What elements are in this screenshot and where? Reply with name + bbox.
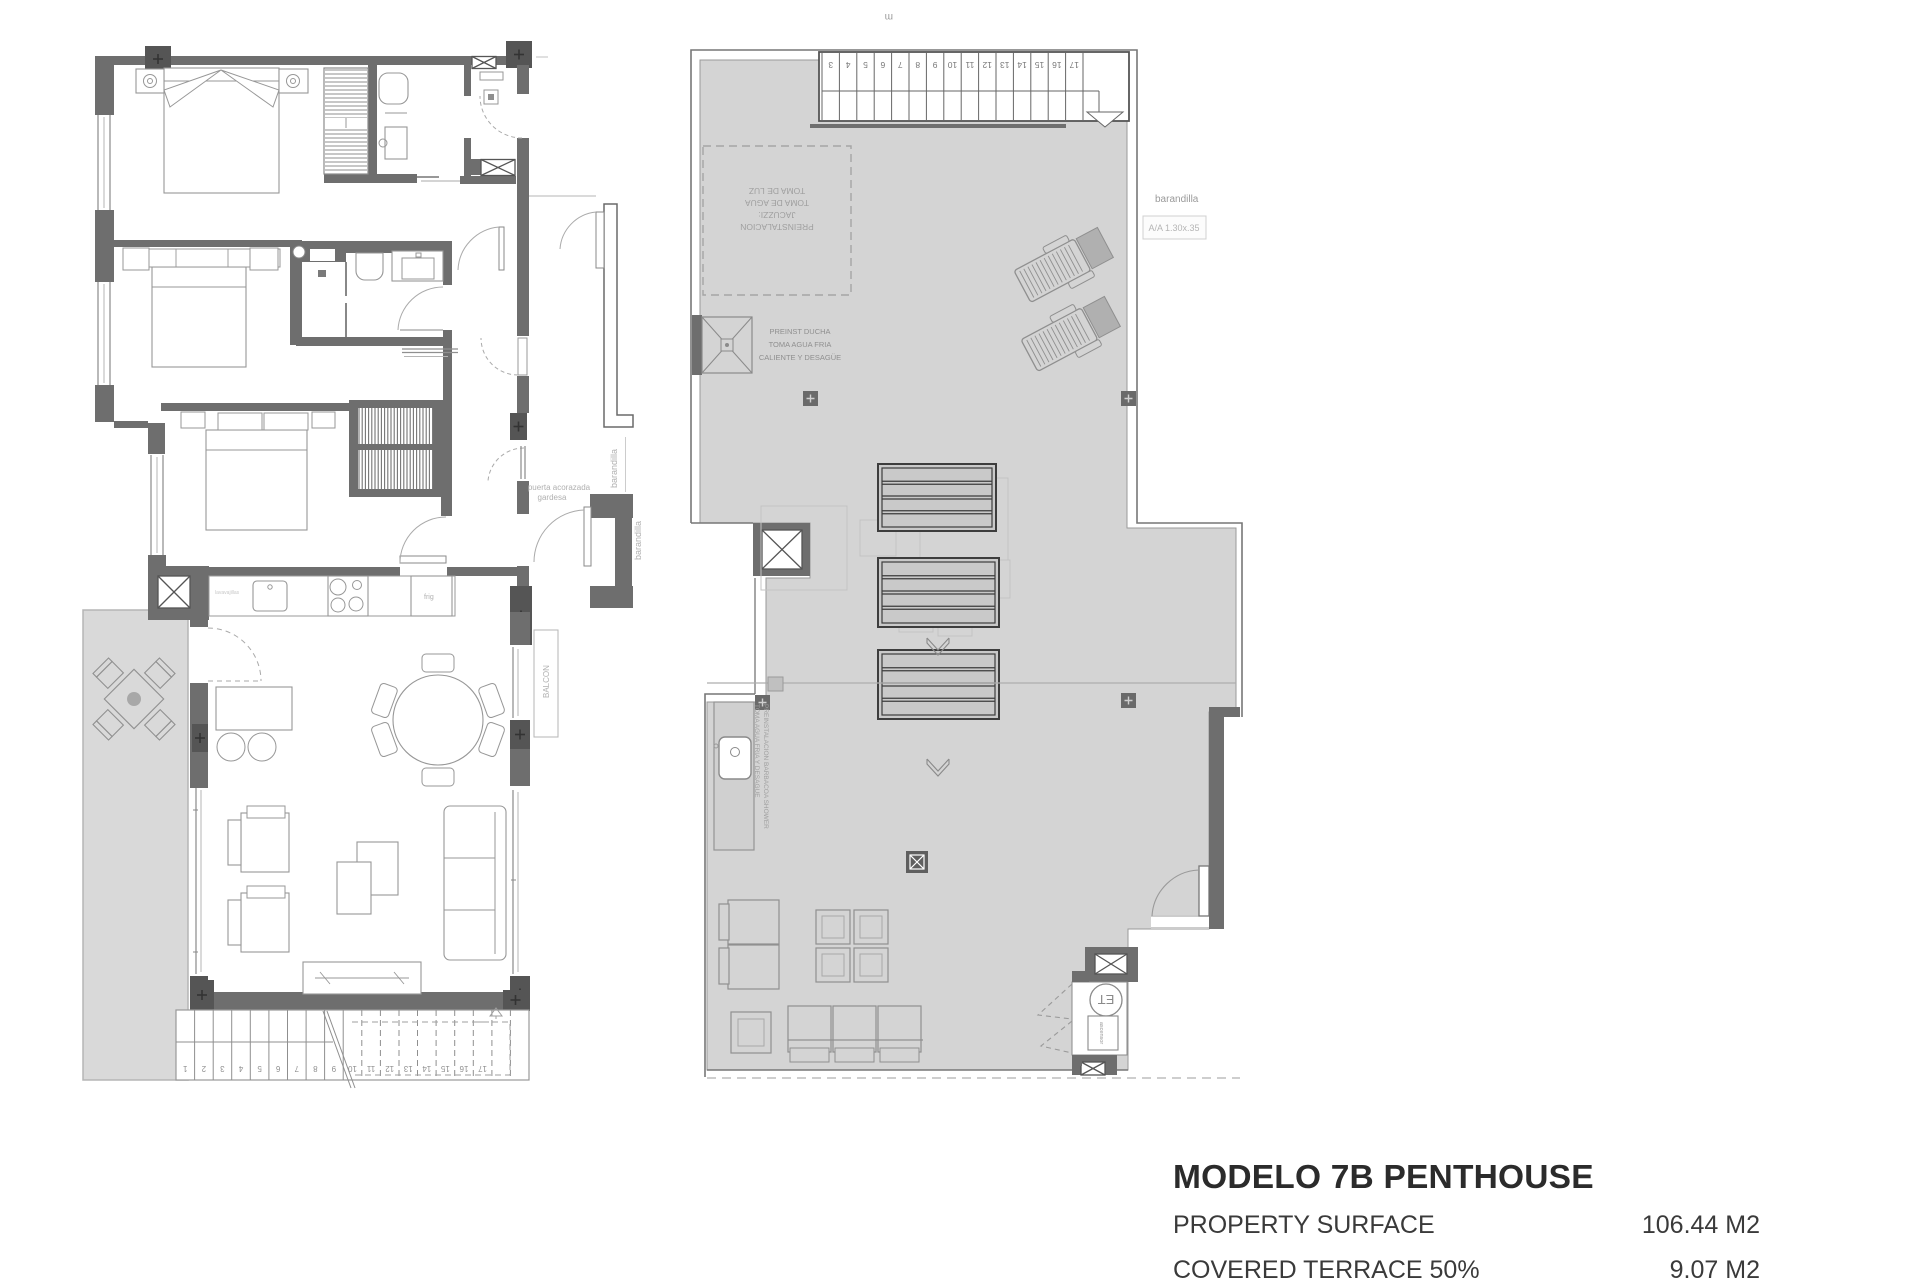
svg-text:barandilla: barandilla (609, 449, 619, 488)
svg-text:JACUZZI:: JACUZZI: (758, 210, 795, 220)
svg-text:9: 9 (932, 60, 937, 70)
svg-text:PREINST DUCHA: PREINST DUCHA (769, 327, 830, 336)
svg-text:puerta acorazada: puerta acorazada (528, 483, 591, 492)
svg-text:COVERED TERRACE 50%: COVERED TERRACE 50% (1173, 1256, 1480, 1280)
svg-text:17: 17 (478, 1064, 487, 1073)
svg-text:lavavajillas: lavavajillas (215, 590, 240, 596)
svg-text:16: 16 (1052, 60, 1062, 70)
svg-text:BALCON: BALCON (542, 665, 551, 698)
svg-text:14: 14 (1017, 60, 1027, 70)
svg-text:10: 10 (948, 60, 958, 70)
svg-text:PROPERTY SURFACE: PROPERTY SURFACE (1173, 1211, 1435, 1239)
svg-text:MODELO 7B PENTHOUSE: MODELO 7B PENTHOUSE (1173, 1159, 1594, 1196)
svg-text:barandilla: barandilla (1155, 194, 1199, 205)
svg-text:15: 15 (440, 1064, 449, 1073)
svg-text:11: 11 (366, 1064, 375, 1073)
svg-text:A/A 1.30x.35: A/A 1.30x.35 (1148, 223, 1199, 233)
svg-text:barandilla: barandilla (633, 521, 643, 560)
svg-text:6: 6 (880, 60, 885, 70)
svg-text:ascensor: ascensor (1098, 1022, 1104, 1044)
svg-text:12: 12 (982, 60, 992, 70)
svg-text:3: 3 (220, 1064, 225, 1073)
svg-text:PREINSTALACION BARBACOA SHOWER: PREINSTALACION BARBACOA SHOWER (762, 704, 769, 829)
svg-text:ET: ET (1098, 992, 1115, 1007)
svg-text:9: 9 (331, 1064, 336, 1073)
svg-text:PREINSTALACION: PREINSTALACION (740, 222, 814, 232)
svg-text:12: 12 (385, 1064, 394, 1073)
svg-text:16: 16 (459, 1064, 468, 1073)
svg-text:frig: frig (424, 594, 434, 601)
svg-text:TOMA AGUA FRIA: TOMA AGUA FRIA (769, 340, 832, 349)
svg-text:TOMA AGUA FRIA Y DESAGUE: TOMA AGUA FRIA Y DESAGUE (753, 704, 760, 798)
svg-text:CALIENTE Y DESAGÜE: CALIENTE Y DESAGÜE (759, 353, 841, 362)
svg-text:8: 8 (915, 60, 920, 70)
svg-text:gardesa: gardesa (538, 493, 567, 502)
svg-text:5: 5 (257, 1064, 262, 1073)
svg-text:3: 3 (828, 60, 833, 70)
svg-text:14: 14 (422, 1064, 431, 1073)
svg-text:4: 4 (238, 1064, 243, 1073)
svg-text:2: 2 (201, 1064, 206, 1073)
svg-text:13: 13 (403, 1064, 412, 1073)
svg-text:7: 7 (294, 1064, 299, 1073)
svg-text:17: 17 (1069, 60, 1079, 70)
svg-text:TOMA DE AGUA: TOMA DE AGUA (745, 198, 809, 208)
svg-text:6: 6 (275, 1064, 280, 1073)
svg-text:1: 1 (183, 1064, 188, 1073)
svg-text:4: 4 (845, 60, 850, 70)
svg-text:106.44 M2: 106.44 M2 (1642, 1211, 1760, 1239)
svg-text:TOMA DE LUZ: TOMA DE LUZ (749, 186, 806, 196)
svg-text:8: 8 (313, 1064, 318, 1073)
svg-text:15: 15 (1035, 60, 1045, 70)
svg-text:7: 7 (898, 60, 903, 70)
svg-text:m: m (885, 11, 893, 22)
svg-text:11: 11 (965, 60, 974, 70)
svg-text:5: 5 (863, 60, 868, 70)
svg-text:9.07 M2: 9.07 M2 (1670, 1256, 1760, 1280)
svg-text:13: 13 (1000, 60, 1010, 70)
